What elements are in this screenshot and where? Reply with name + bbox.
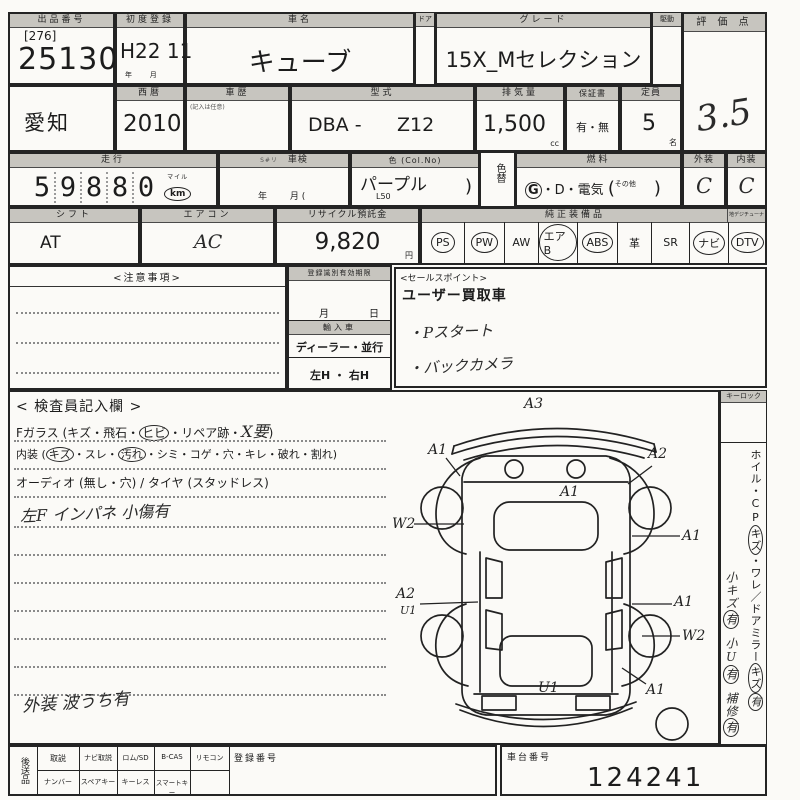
lot-number: 25130 — [18, 42, 118, 77]
model-label: 型式 — [292, 87, 473, 101]
mileage-digit: 0 — [132, 172, 158, 203]
equipment-item: DTV — [728, 222, 765, 263]
damage-label: W2 — [392, 516, 415, 532]
mileage-digit: 9 — [54, 172, 80, 203]
shipment-item: リモコン — [190, 753, 229, 763]
exterior-grade: C — [684, 174, 724, 198]
glass-condition-line: Fガラス (キズ・飛石・ヒビ・リペア跡・X要) — [16, 418, 273, 442]
fuel-label: 燃料 — [517, 154, 680, 168]
shipment-item: キーレス — [117, 777, 154, 787]
handwritten-ari: 有 — [748, 693, 763, 711]
displacement-value: 1,500 — [483, 112, 546, 137]
color-label: 色 (Col.No) — [352, 154, 478, 168]
recycle-fee-cell: リサイクル預託金 9,820 円 — [275, 207, 420, 265]
month-label: 月 — [319, 305, 329, 320]
region-value: 愛知 — [24, 107, 70, 137]
dotted-line — [14, 610, 386, 612]
shipment-item: スマートキー — [154, 777, 190, 797]
warranty-value: 有・無 — [567, 119, 618, 135]
exterior-label: 外装 — [684, 154, 724, 168]
capacity-label: 定員 — [622, 87, 680, 101]
equipment-item: ナビ — [689, 222, 729, 263]
damage-label: A1 — [680, 528, 701, 544]
equipment-label: 純正装備品 — [422, 209, 728, 223]
km-unit-badge: マイルkm — [164, 172, 191, 201]
first-registration-cell: 初度登録 H22 11 年 月 — [115, 12, 185, 85]
dotted-line — [14, 638, 386, 640]
fuel-rest: ・D・電気 — [542, 183, 604, 198]
windshield — [494, 502, 598, 550]
fuel-paren-open: ( — [608, 178, 615, 199]
dotted-line — [16, 342, 279, 344]
damage-label: A1 — [558, 484, 579, 500]
interior-grade: C — [728, 174, 765, 198]
color-cell: 色 (Col.No) パープル L50 ) — [350, 152, 480, 207]
displacement-cell: 排気量 1,500 cc — [475, 85, 565, 152]
circled-kizu: キズ — [46, 447, 74, 462]
left-front-wheel — [421, 487, 463, 529]
sales-point-handwritten: ・バックカメラ — [408, 352, 514, 378]
cautions-label: <注意事項> — [10, 269, 285, 287]
later-shipment-table: 後送品 取説 ナビ取説 ロム/SD B-CAS リモコン ナンバー スペアキー … — [8, 745, 497, 796]
dotted-line — [14, 440, 386, 442]
grade-value: 15X_Mセレクション — [437, 44, 650, 74]
registration-number-label: 登録番号 — [234, 751, 278, 764]
keylock-label: キーロック — [721, 391, 766, 403]
registration-validity-cell: 登録識別有効期限 月 日 輸入車 ディーラー・並行 左H ・ 右H — [287, 265, 392, 390]
divider — [289, 357, 390, 358]
divider — [229, 747, 230, 794]
shaken-cell: S#リ車検 年 月 ( — [218, 152, 350, 207]
shift-label: シフト — [10, 209, 138, 223]
warranty-label: 保証書 — [567, 87, 618, 101]
recycle-unit: 円 — [405, 250, 413, 261]
day-label: 日 — [369, 305, 379, 320]
shift-cell: シフト AT — [8, 207, 140, 265]
damage-label: U1 — [400, 604, 416, 617]
tuner-label: 地デジチューナー — [727, 209, 765, 223]
circled-kizu: キズ — [748, 525, 763, 555]
mile-label: マイル — [164, 172, 191, 181]
shipment-item: 取説 — [37, 753, 79, 764]
lot-number-cell: 出品番号 [276] 25130 — [8, 12, 115, 85]
import-options: ディーラー・並行 — [289, 339, 390, 355]
color-code: L50 — [376, 192, 391, 201]
equipment-item: 革 — [617, 222, 652, 263]
sales-points-cell: <セールスポイント> ユーザー買取車 ・Pスタート ・バックカメラ — [394, 267, 767, 388]
mileage-digit: 8 — [106, 172, 132, 203]
fuel-other: その他 — [615, 180, 636, 188]
equipment-item: PS — [422, 222, 464, 263]
sales-points-label: <セールスポイント> — [400, 271, 487, 284]
drivetrain-label: 駆動 — [653, 13, 681, 27]
recycle-value: 9,820 — [277, 229, 418, 255]
shipment-item: B-CAS — [154, 753, 190, 761]
dotted-line — [14, 582, 386, 584]
score-cell: 評 価 点 3.5 — [682, 12, 767, 152]
color-value: パープル — [360, 170, 427, 195]
damage-label: A1 — [644, 682, 665, 698]
car-name: キューブ — [187, 42, 413, 79]
dotted-line — [14, 526, 386, 528]
car-diagram: A3 A1 A2 A1 W2 A1 A2 U1 A1 W2 A1 U1 — [390, 392, 718, 742]
equipment-item: ABS — [577, 222, 617, 263]
equipment-item: PW — [464, 222, 505, 263]
first-registration-value: H22 11 — [120, 39, 192, 63]
damage-label: A1 — [426, 442, 447, 458]
rear-window — [500, 636, 592, 686]
auction-sheet-page: { "header": { "lot_label": "出品番号", "lot_… — [0, 0, 800, 800]
color-paren: ) — [465, 176, 472, 197]
dotted-line — [14, 496, 386, 498]
fuel-cell: 燃料 G・D・電気 (その他) — [515, 152, 682, 207]
score-value: 3.5 — [693, 92, 754, 140]
spare-circle — [656, 708, 688, 740]
km-label: km — [164, 187, 191, 201]
divider — [37, 770, 229, 771]
interior-label: 内装 — [728, 154, 765, 168]
fuel-paren-close: ) — [654, 178, 661, 199]
aircon-label: エアコン — [142, 209, 273, 223]
mileage-label: 走行 — [10, 154, 216, 168]
cautions-cell: <注意事項> — [8, 265, 287, 390]
damage-label: W2 — [682, 628, 705, 644]
first-registration-label: 初度登録 — [117, 14, 183, 28]
circled-kizu: キズ — [748, 663, 763, 693]
mileage-value: 59880マイルkm — [30, 172, 191, 203]
mileage-digit: 5 — [30, 172, 54, 203]
model-code: Z12 — [397, 114, 434, 136]
capacity-value: 5 — [642, 111, 656, 136]
dotted-line — [14, 554, 386, 556]
grade-cell: グレード 15X_Mセレクション — [435, 12, 652, 85]
damage-label: A2 — [394, 586, 415, 602]
shipment-item: ナビ取説 — [79, 753, 117, 763]
year-label: 西暦 — [117, 87, 183, 101]
history-label: 車歴 — [187, 87, 288, 101]
lot-bracket: [276] — [24, 29, 56, 43]
handwritten-x-required: X要 — [241, 422, 268, 441]
damage-label: A2 — [646, 446, 667, 462]
door-label: ドア — [416, 13, 434, 27]
score-label: 評 価 点 — [684, 14, 765, 32]
mileage-digit: 8 — [80, 172, 106, 203]
margin-printed-note: ホイル・CPキズ・ワレ／ドアミラーキズ有 — [747, 449, 763, 711]
right-margin-column: ホイル・CPキズ・ワレ／ドアミラーキズ有 小キズ有小U有補修有 — [720, 443, 767, 745]
aircon-value: AC — [194, 231, 222, 253]
import-label: 輸入車 — [289, 320, 390, 335]
mileage-cell: 走行 59880マイルkm — [8, 152, 218, 207]
history-note: (記入は任意) — [190, 102, 225, 111]
shipment-item: スペアキー — [79, 777, 117, 787]
dotted-line — [14, 666, 386, 668]
color-change-label: 色替 — [492, 163, 507, 183]
interior-grade-cell: 内装 C — [726, 152, 767, 207]
shaken-units: 年 月 ( — [258, 189, 305, 202]
damage-label: U1 — [538, 680, 559, 696]
displacement-label: 排気量 — [477, 87, 563, 101]
car-body-outline — [462, 456, 630, 715]
grade-label: グレード — [437, 14, 650, 28]
door-cell: ドア — [415, 12, 435, 85]
circled-yogore: 汚れ — [118, 447, 146, 462]
equipment-item: エアB — [538, 222, 578, 263]
audio-tire-line: オーディオ (無し・穴) / タイヤ (スタッドレス) — [16, 474, 269, 491]
year-value: 2010 — [123, 111, 182, 137]
shaken-label: S#リ車検 — [220, 154, 348, 168]
dotted-line — [16, 312, 279, 314]
inspector-handwritten-note: 左F インパネ 小傷有 — [20, 497, 170, 526]
region-cell: 愛知 — [8, 85, 115, 152]
right-front-fender — [610, 458, 654, 554]
sales-point-handwritten: ・Pスタート — [408, 320, 494, 344]
color-change-cell: 色替 — [480, 152, 515, 207]
shipment-item: ナンバー — [37, 777, 79, 787]
capacity-cell: 定員 5 名 — [620, 85, 682, 152]
exterior-grade-cell: 外装 C — [682, 152, 726, 207]
sales-point-printed: ユーザー買取車 — [402, 285, 507, 305]
dotted-line — [16, 372, 279, 374]
interior-condition-line: 内装 (キズ・スレ・汚れ・シミ・コゲ・穴・キレ・破れ・割れ) — [16, 446, 337, 462]
damage-label: A1 — [672, 594, 693, 610]
registration-validity-label: 登録識別有効期限 — [289, 267, 390, 281]
fuel-value: G・D・電気 (その他) — [525, 178, 661, 199]
keylock-cell: キーロック — [720, 390, 767, 443]
capacity-unit: 名 — [669, 137, 677, 148]
fuel-gasoline-circled: G — [525, 182, 542, 199]
handle-position: 左H ・ 右H — [289, 367, 390, 383]
equipment-cell: 純正装備品 地デジチューナー PS PW AW エアB ABS 革 SR ナビ … — [420, 207, 767, 265]
aircon-cell: エアコン AC — [140, 207, 275, 265]
model-code-cell: 型式 DBA - Z12 — [290, 85, 475, 152]
displacement-unit: cc — [550, 139, 559, 148]
shipment-item: ロム/SD — [117, 753, 154, 763]
warranty-cell: 保証書 有・無 — [565, 85, 620, 152]
dotted-line — [14, 468, 386, 470]
later-shipment-label: 後送品 — [10, 747, 38, 794]
circled-hibi: ヒビ — [139, 425, 169, 441]
car-name-label: 車名 — [187, 14, 413, 28]
first-registration-units: 年 月 — [125, 70, 157, 80]
history-cell: 車歴 (記入は任意) — [185, 85, 290, 152]
year-cell: 西暦 2010 — [115, 85, 185, 152]
car-name-cell: 車名 キューブ — [185, 12, 415, 85]
inspector-handwritten-note: 外装 波うち有 — [21, 684, 130, 716]
equipment-row: PS PW AW エアB ABS 革 SR ナビ DTV — [422, 222, 765, 263]
model-prefix: DBA - — [308, 114, 362, 136]
equipment-item: AW — [504, 222, 538, 263]
chassis-number-label: 車台番号 — [507, 750, 551, 763]
margin-handwritten-note: 小キズ有小U有補修有 — [723, 571, 740, 737]
meter-note: S#リ — [260, 157, 278, 164]
left-rear-fender — [436, 604, 468, 686]
drivetrain-cell: 駆動 — [652, 12, 682, 85]
recycle-label: リサイクル預託金 — [277, 209, 418, 223]
chassis-number-cell: 車台番号 124241 — [500, 745, 767, 796]
equipment-item: SR — [651, 222, 689, 263]
lot-number-label: 出品番号 — [10, 14, 113, 28]
inspector-title: < 検査員記入欄 > — [16, 396, 142, 416]
damage-label: A3 — [522, 396, 543, 412]
chassis-number: 124241 — [587, 763, 704, 793]
shift-value: AT — [40, 233, 61, 253]
right-rear-fender — [622, 604, 654, 686]
